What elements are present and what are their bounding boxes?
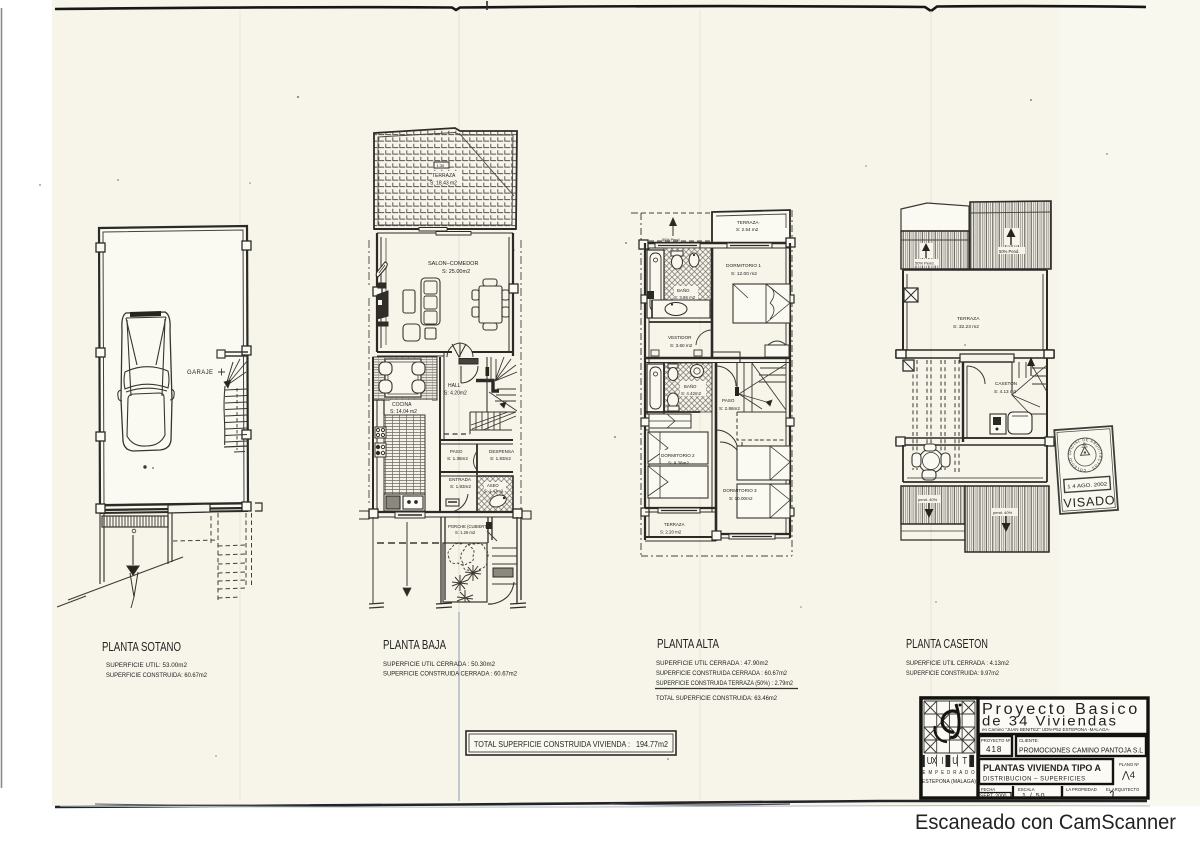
svg-text:PROMOCIONES CAMINO PANTOJA S.L: PROMOCIONES CAMINO PANTOJA S.L [1019,746,1143,755]
svg-text:S: 1.26 m2: S: 1.26 m2 [455,530,476,535]
svg-text:ASEO: ASEO [487,483,499,488]
svg-text:PLANTA BAJA: PLANTA BAJA [383,637,446,652]
svg-text:CASETON: CASETON [995,381,1017,386]
svg-text:PLANTAS VIVIENDA TIPO A: PLANTAS VIVIENDA TIPO A [983,763,1101,773]
svg-text:SUPERFICIE UTIL CERRADA : 50.3: SUPERFICIE UTIL CERRADA : 50.30m2 [383,661,495,668]
svg-text:DORMITORIO 3: DORMITORIO 3 [723,488,757,493]
svg-text:⋀4: ⋀4 [1121,770,1135,781]
svg-text:HALL: HALL [448,383,461,389]
svg-text:VESTIDOR: VESTIDOR [668,335,692,340]
svg-text:PASO: PASO [450,449,463,454]
svg-text:S: 14.04 m2: S: 14.04 m2 [390,409,417,415]
svg-text:SALON–COMEDOR: SALON–COMEDOR [428,261,478,267]
svg-text:TERRAZA·: TERRAZA· [737,220,760,225]
svg-text:50% Pend.: 50% Pend. [999,249,1020,254]
svg-text:SEPT. 2000: SEPT. 2000 [980,794,1007,800]
svg-text:DORMITORIO 2: DORMITORIO 2 [661,453,695,458]
svg-text:S: 4.42m2: S: 4.42m2 [681,391,702,396]
svg-text:S: 32.23 m2: S: 32.23 m2 [953,324,979,330]
svg-text:PORCHE (CUBIERTO): PORCHE (CUBIERTO) [448,524,492,529]
svg-text:S: 4.20m2: S: 4.20m2 [444,391,467,397]
svg-text:S: 2.20 m2: S: 2.20 m2 [660,530,682,535]
svg-text:S: 1.47m2: S: 1.47m2 [484,489,504,494]
svg-text:PASO: PASO [722,398,735,403]
svg-text:SUPERFICIE CONSTRUIDA: 9.97m2: SUPERFICIE CONSTRUIDA: 9.97m2 [906,670,999,677]
svg-text:1.30: 1.30 [437,163,446,168]
svg-text:50% Pend.: 50% Pend. [662,238,681,242]
svg-text:Escaneado con CamScanner: Escaneado con CamScanner [915,811,1176,834]
svg-text:S: 1.83m2: S: 1.83m2 [490,456,511,461]
svg-text:pend. 40%: pend. 40% [918,497,938,502]
svg-text:PLANTA ALTA: PLANTA ALTA [657,636,719,651]
svg-text:S: 2.86m2: S: 2.86m2 [719,406,740,411]
svg-text:TOTAL SUPERFICIE CONSTRUIDA: 6: TOTAL SUPERFICIE CONSTRUIDA: 63.46m2 [656,695,777,702]
svg-text:BAÑO: BAÑO [677,288,690,293]
svg-text:CLIENTE:: CLIENTE: [1019,738,1039,743]
svg-text:en Camino "JUAN BENITEZ" UDN-P: en Camino "JUAN BENITEZ" UDN-P52 ESTEPON… [982,727,1110,732]
svg-text:PLANO Nº: PLANO Nº [1119,762,1139,767]
svg-text:PLANTA CASETON: PLANTA CASETON [906,636,988,651]
svg-text:S: 10.00m2: S: 10.00m2 [729,496,753,501]
svg-text:▌UX▏I▐▌U▏T▐▌: ▌UX▏I▐▌U▏T▐▌ [922,754,976,768]
svg-text:S: 1.38m2: S: 1.38m2 [447,456,468,461]
svg-text:SUPERFICIE CONSTRUIDA CERRADA: SUPERFICIE CONSTRUIDA CERRADA : 60.67m2 [656,670,787,677]
svg-text:TERRAZA: TERRAZA [664,522,685,527]
svg-text:S: 2.54 m2: S: 2.54 m2 [736,227,759,232]
svg-text:DESPENSA: DESPENSA [489,449,515,454]
svg-text:S: 18.43 m2: S: 18.43 m2 [430,181,457,187]
svg-text:1 / 50: 1 / 50 [1022,793,1046,800]
svg-text:PROYECTO Nº: PROYECTO Nº [981,738,1011,743]
svg-text:PLANTA SOTANO: PLANTA SOTANO [102,639,181,654]
svg-text:DISTRIBUCION – SUPERFICIES: DISTRIBUCION – SUPERFICIES [983,777,1086,783]
svg-text:SUPERFICIE CONSTRUIDA: 60.67m2: SUPERFICIE CONSTRUIDA: 60.67m2 [106,672,207,679]
svg-text:S: 4.13 m2: S: 4.13 m2 [994,389,1017,394]
svg-text:SUPERFICIE CONSTRUIDA TERRAZA: SUPERFICIE CONSTRUIDA TERRAZA (50%) : 2.… [656,680,793,687]
svg-text:FECHA: FECHA [981,787,995,792]
svg-text:SUPERFICIE UTIL CERRADA : 47.9: SUPERFICIE UTIL CERRADA : 47.90m2 [656,660,768,667]
svg-text:ENTRADA: ENTRADA [449,477,472,482]
svg-text:TOTAL SUPERFICIE CONSTRUIDA VI: TOTAL SUPERFICIE CONSTRUIDA VIVIENDA : 1… [474,740,668,749]
svg-text:S: 12.00 m2: S: 12.00 m2 [731,271,757,277]
svg-text:S: 9.36m2: S: 9.36m2 [668,461,689,466]
svg-text:pend. 40%: pend. 40% [993,510,1013,515]
svg-text:BAÑO: BAÑO [684,384,697,389]
svg-text:ESTEPONA (MALAGA): ESTEPONA (MALAGA) [922,779,976,785]
svg-text:ESCALA: ESCALA [1018,787,1035,792]
svg-text:S: 25.00m2: S: 25.00m2 [442,269,470,275]
svg-text:TERRAZA: TERRAZA [957,316,980,322]
svg-text:S: 3.60 m2: S: 3.60 m2 [670,343,693,348]
svg-text:DORMITORIO 1: DORMITORIO 1 [726,263,761,269]
svg-text:E M P E D R A D O: E M P E D R A D O [923,770,976,776]
svg-text:SUPERFICIE UTIL: 53.00m2: SUPERFICIE UTIL: 53.00m2 [106,662,187,669]
svg-text:50% Pend.: 50% Pend. [915,261,935,266]
svg-text:S: 1.83m2: S: 1.83m2 [450,484,471,489]
svg-text:LA PROPIEDAD: LA PROPIEDAD [1066,787,1097,792]
svg-text:S: 3.86 m2: S: 3.86 m2 [674,295,696,300]
svg-text:SUPERFICIE UTIL CERRADA : 4.13: SUPERFICIE UTIL CERRADA : 4.13m2 [906,660,1009,667]
svg-text:TERRAZA: TERRAZA [432,173,456,179]
svg-text:COCINA: COCINA [392,402,412,408]
svg-text:SUPERFICIE CONSTRUIDA CERRADA: SUPERFICIE CONSTRUIDA CERRADA : 60.67m2 [383,671,517,678]
svg-text:GARAJE: GARAJE [187,370,213,376]
svg-text:418: 418 [986,745,1002,754]
